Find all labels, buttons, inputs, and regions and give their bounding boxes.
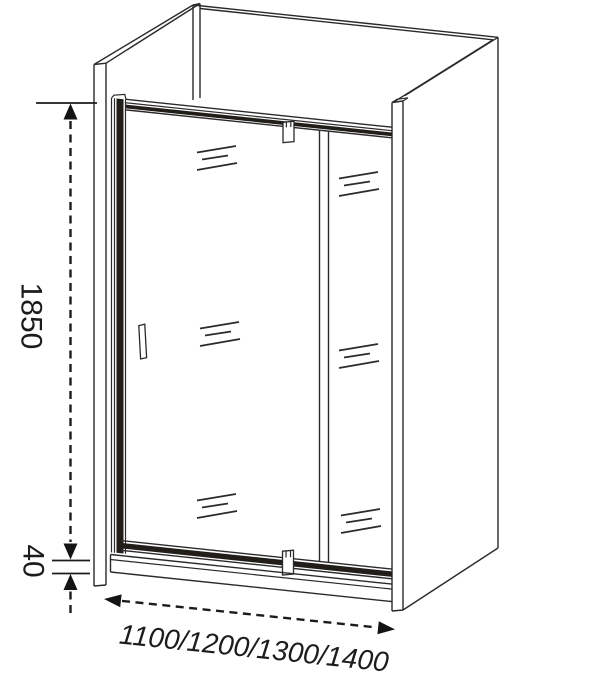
base-height-dimension: 40 [17, 544, 91, 618]
height-dimension-label: 1850 [15, 283, 48, 350]
top-roller-bracket [283, 121, 294, 143]
base-height-dimension-label: 40 [17, 544, 50, 577]
arrow-down-icon [64, 544, 78, 560]
door-handle [139, 324, 147, 359]
glass-hatch-marks [197, 146, 381, 533]
arrow-up-icon [64, 104, 78, 120]
shower-door-technical-drawing: 1850 40 1100/1200/1300/1400 [0, 0, 600, 689]
panel-divider [320, 130, 329, 562]
width-dimension: 1100/1200/1300/1400 [104, 594, 395, 677]
right-wall [392, 37, 498, 611]
glass-hatch-right-middle [339, 344, 379, 368]
arrow-up-icon [64, 574, 78, 590]
glass-hatch-left-top [197, 146, 237, 170]
glass-hatch-right-top [339, 172, 379, 196]
top-rail [126, 99, 392, 138]
bottom-guide-block [283, 550, 294, 575]
drawing-svg: 1850 40 1100/1200/1300/1400 [0, 0, 600, 689]
door-frame-post [112, 94, 127, 553]
glass-hatch-left-bottom [197, 494, 237, 518]
arrow-right-icon [377, 621, 395, 634]
glass-hatch-right-bottom [341, 509, 381, 533]
height-dimension: 1850 [15, 103, 98, 560]
glass-hatch-left-middle [200, 322, 240, 346]
left-wall [94, 4, 200, 587]
back-wall [193, 5, 498, 40]
width-dimension-label: 1100/1200/1300/1400 [118, 618, 391, 677]
arrow-left-icon [104, 594, 122, 607]
